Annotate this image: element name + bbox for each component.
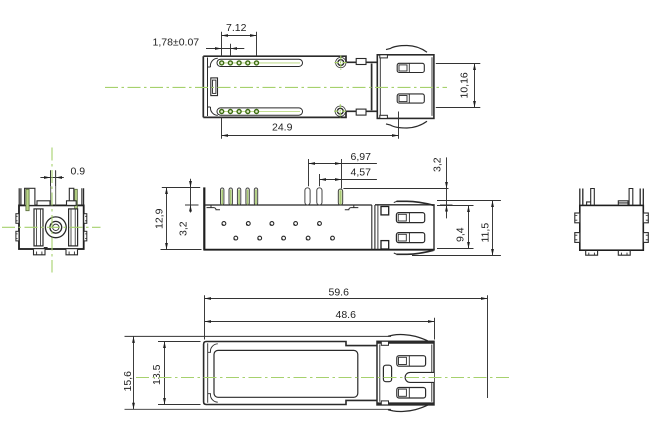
svg-text:3,2: 3,2: [177, 221, 189, 236]
svg-text:10,16: 10,16: [459, 72, 471, 98]
svg-text:1,78±0.07: 1,78±0.07: [153, 37, 200, 49]
svg-text:15,6: 15,6: [122, 371, 134, 392]
svg-text:59.6: 59.6: [329, 287, 350, 299]
svg-text:48.6: 48.6: [336, 309, 357, 321]
svg-text:4,57: 4,57: [351, 167, 372, 179]
svg-text:0.9: 0.9: [71, 166, 86, 178]
svg-text:24.9: 24.9: [272, 122, 293, 134]
svg-text:11,5: 11,5: [479, 223, 491, 243]
svg-text:6,97: 6,97: [351, 151, 372, 163]
svg-text:12,9: 12,9: [154, 208, 166, 229]
svg-text:9,4: 9,4: [455, 227, 467, 242]
svg-text:13.5: 13.5: [151, 364, 163, 385]
svg-text:7.12: 7.12: [226, 22, 247, 34]
svg-text:3,2: 3,2: [432, 157, 444, 172]
